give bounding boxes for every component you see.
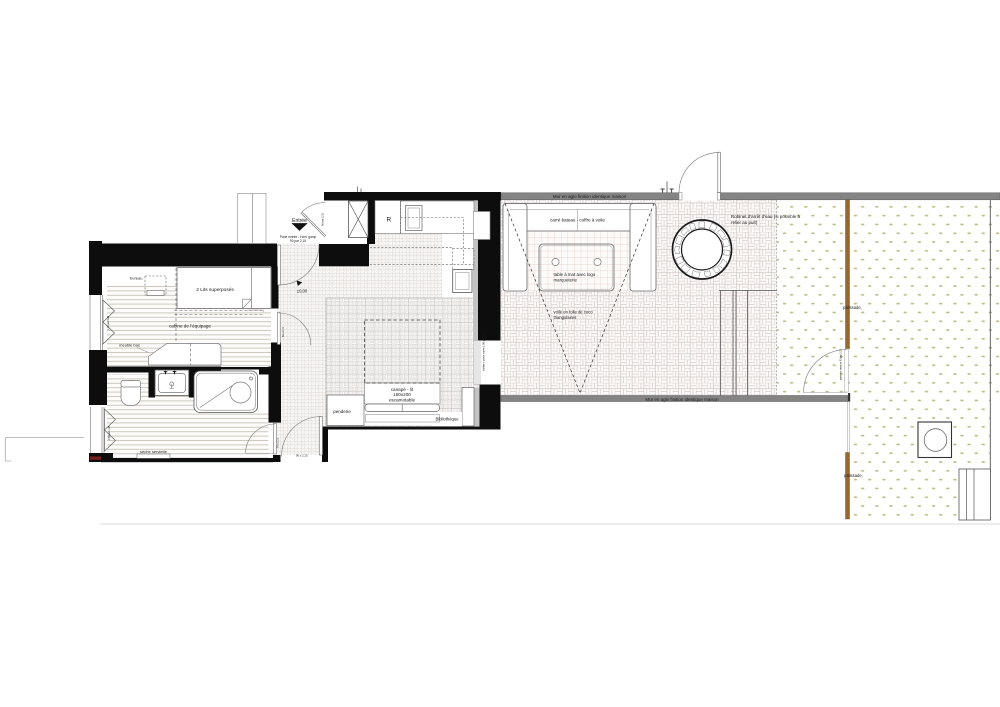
svg-text:porte sur mesure 90 par 2,10: porte sur mesure 90 par 2,10 (840, 348, 843, 380)
svg-text:±0,00: ±0,00 (297, 289, 308, 294)
svg-text:Mur en aglo finition identique: Mur en aglo finition identique maison (553, 194, 627, 199)
svg-text:Bibliothèque: Bibliothèque (435, 417, 459, 422)
svg-text:sèche serviette: sèche serviette (140, 449, 168, 454)
svg-text:cabine de l'équipage: cabine de l'équipage (169, 324, 211, 329)
svg-text:Entrée: Entrée (292, 218, 307, 224)
svg-text:90 x 2,15: 90 x 2,15 (296, 453, 308, 457)
svg-text:2 Lits superposés: 2 Lits superposés (196, 287, 234, 293)
svg-text:R: R (387, 217, 392, 224)
svg-text:penderie: penderie (333, 409, 351, 414)
svg-text:90 par 2,15: 90 par 2,15 (290, 239, 306, 243)
svg-text:palissade,: palissade, (843, 305, 862, 310)
svg-text:marqueterie: marqueterie (554, 277, 578, 282)
svg-text:Robinet d'arrêt d'eau (si poss: Robinet d'arrêt d'eau (si possible à (731, 214, 801, 219)
svg-text:160x200: 160x200 (393, 392, 411, 397)
svg-text:bureau: bureau (130, 276, 142, 281)
svg-text:voile en toile de coco: voile en toile de coco (554, 310, 594, 315)
svg-text:90 x 2,15: 90 x 2,15 (277, 437, 280, 448)
svg-text:Mur en aglo finition identique: Mur en aglo finition identique maison (645, 397, 719, 402)
svg-text:Porte entrée - Hors' gamp: Porte entrée - Hors' gamp (280, 235, 317, 239)
svg-text:80 x 2,15: 80 x 2,15 (282, 326, 285, 337)
svg-text:relier au puit): relier au puit) (731, 220, 758, 225)
svg-text:triangulaires: triangulaires (554, 315, 577, 320)
svg-text:carré bateau - coffre à voile: carré bateau - coffre à voile (550, 218, 605, 223)
svg-text:palissade,: palissade, (844, 473, 863, 478)
svg-text:90 par 2,15: 90 par 2,15 (321, 212, 325, 226)
svg-text:table à mat avec logo: table à mat avec logo (554, 272, 596, 277)
svg-text:Atelier + porte vitrée 1,96 pa: Atelier + porte vitrée 1,96 par 2,10 (482, 331, 486, 371)
svg-text:escamotable: escamotable (389, 397, 415, 402)
svg-text:1,04 par 0,80: 1,04 par 0,80 (107, 315, 110, 330)
svg-text:meuble bas: meuble bas (119, 343, 140, 348)
svg-text:0,80 par 1,04: 0,80 par 1,04 (108, 425, 111, 440)
